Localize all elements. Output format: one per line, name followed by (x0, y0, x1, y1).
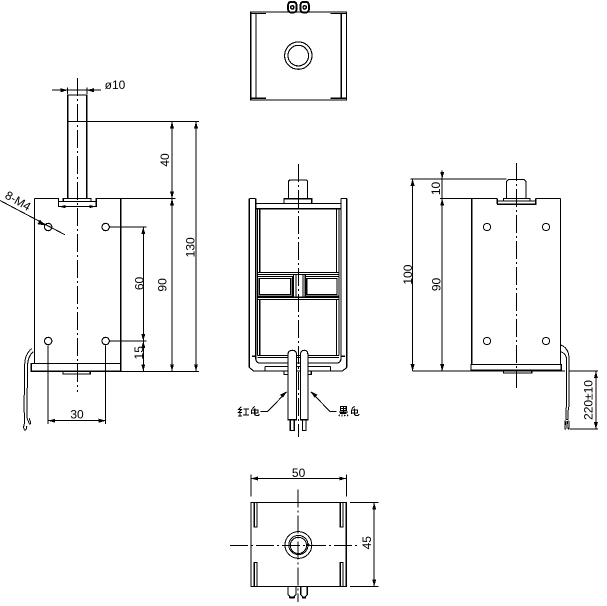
svg-text:90: 90 (156, 278, 170, 292)
svg-text:130: 130 (183, 237, 197, 257)
svg-text:220±10: 220±10 (582, 380, 596, 420)
svg-text:40: 40 (158, 153, 172, 167)
svg-text:50: 50 (292, 466, 306, 480)
svg-text:10: 10 (429, 182, 443, 196)
svg-text:100: 100 (401, 264, 415, 284)
svg-text:60: 60 (132, 277, 146, 291)
svg-text:30: 30 (70, 407, 84, 421)
svg-text:15: 15 (132, 346, 146, 360)
svg-text:90: 90 (429, 278, 443, 292)
svg-text:45: 45 (360, 536, 374, 550)
svg-text:ø10: ø10 (105, 78, 126, 92)
